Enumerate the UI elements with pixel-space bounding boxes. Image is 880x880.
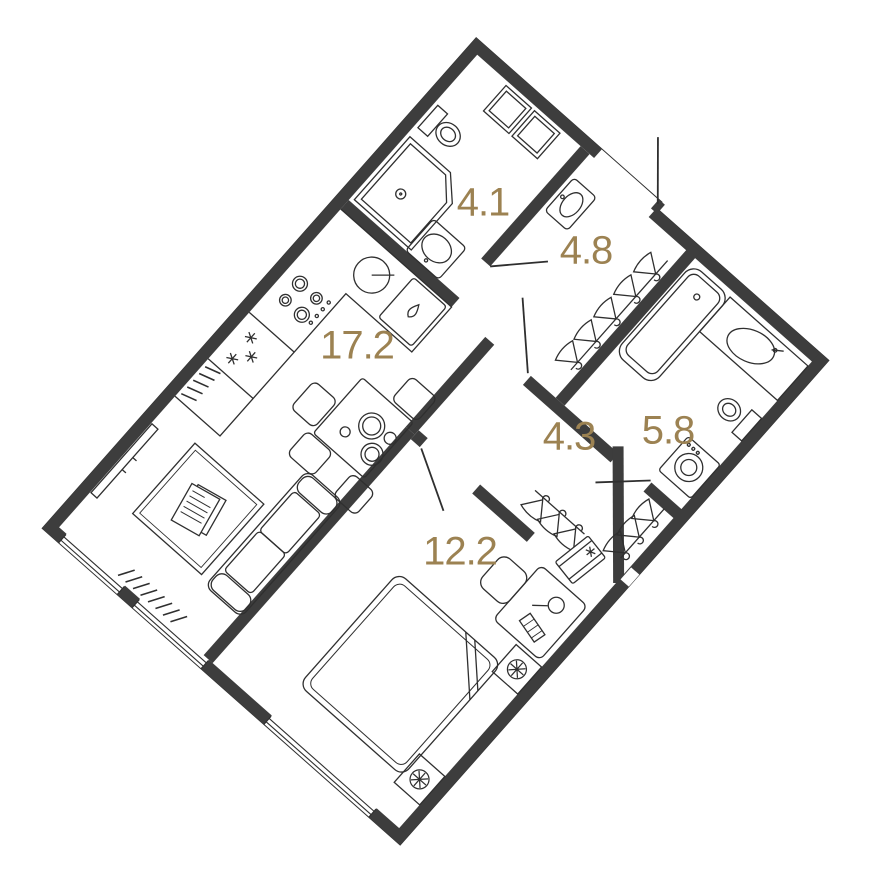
room-label-corridor: 4.3 (543, 415, 596, 460)
room-label-bathroom-1: 4.1 (457, 181, 510, 226)
floor-plan-drawing (0, 0, 880, 880)
room-label-bathroom-2: 5.8 (642, 409, 695, 454)
entrance-door-leaf (625, 137, 691, 204)
room-label-kitchen-living: 17.2 (320, 324, 394, 369)
room-label-bedroom: 12.2 (423, 530, 497, 575)
room-label-entry-hall: 4.8 (560, 229, 613, 274)
floor-plan-page: 4.1 4.8 17.2 4.3 5.8 12.2 (0, 0, 880, 880)
